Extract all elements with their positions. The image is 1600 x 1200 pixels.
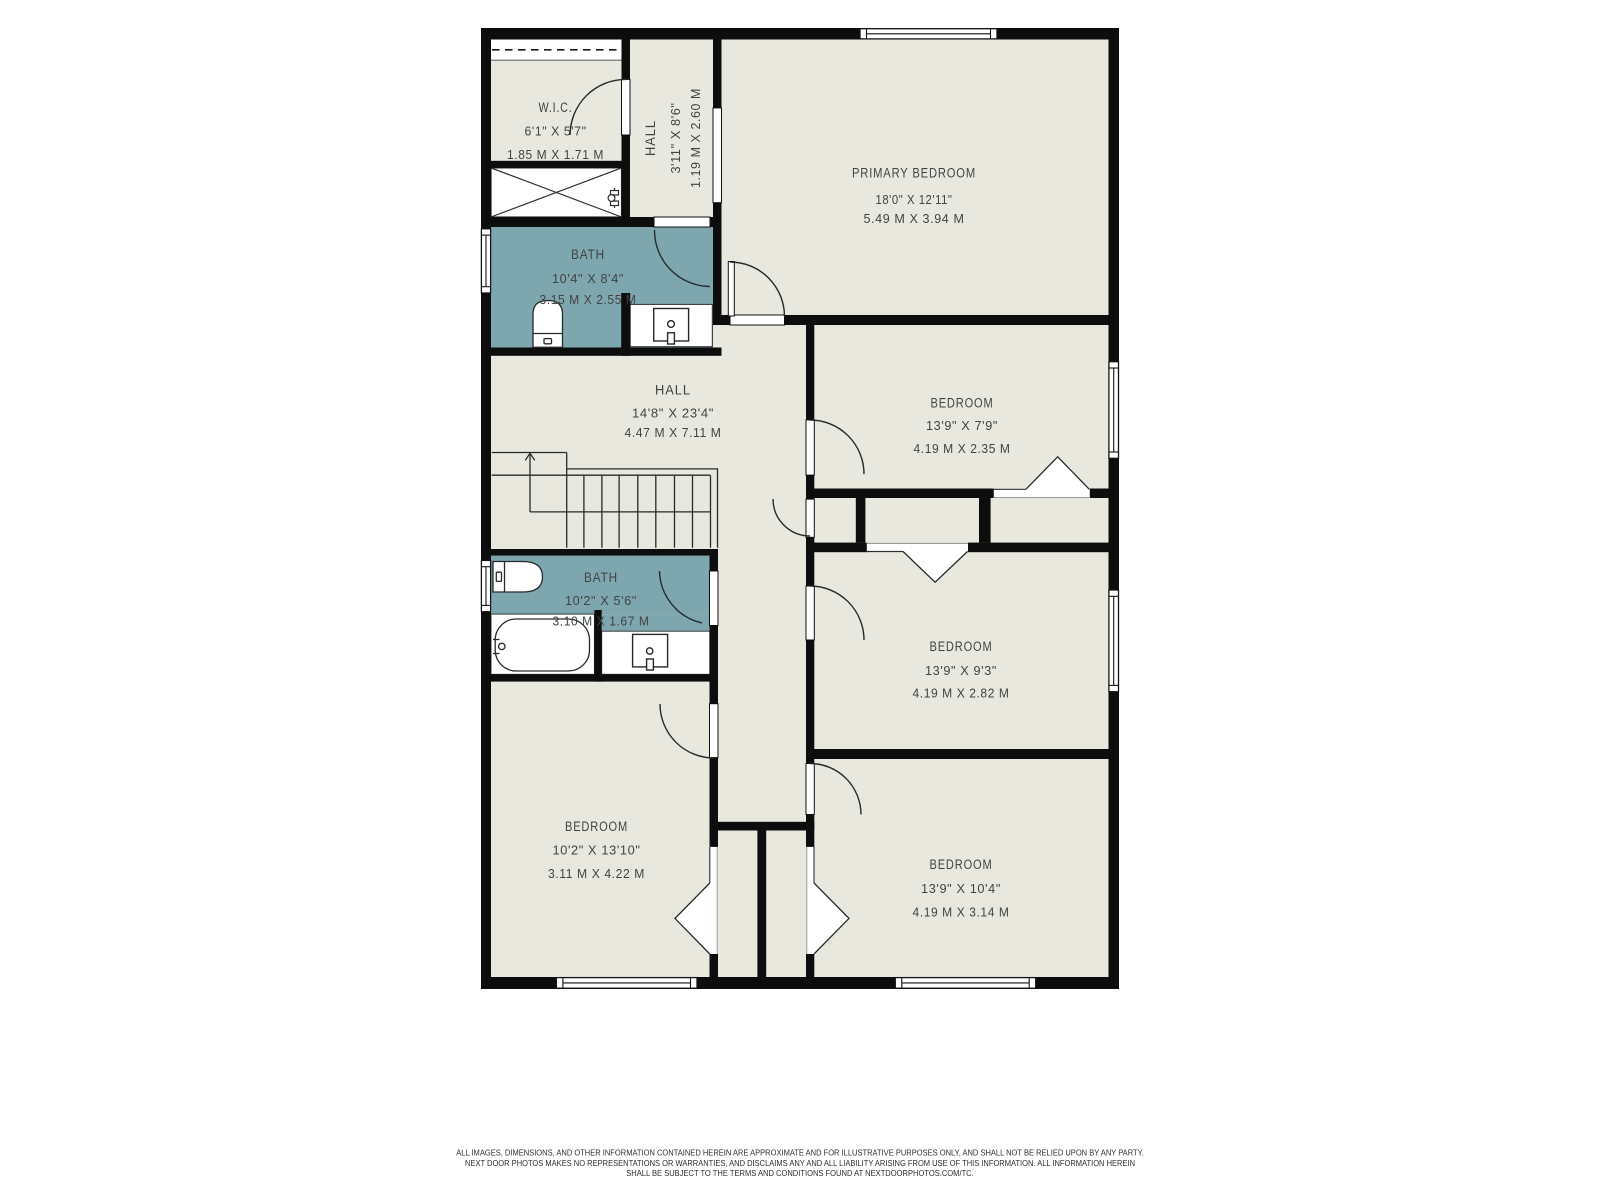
svg-text:10'2" X 5'6": 10'2" X 5'6"	[565, 594, 637, 608]
svg-text:14'8" X 23'4": 14'8" X 23'4"	[632, 407, 714, 421]
svg-text:HALL: HALL	[643, 120, 658, 156]
svg-text:10'2" X 13'10": 10'2" X 13'10"	[553, 844, 641, 858]
svg-text:NEXT DOOR PHOTOS MAKES NO REPR: NEXT DOOR PHOTOS MAKES NO REPRESENTATION…	[465, 1159, 1135, 1168]
svg-text:3.10 M X 1.67 M: 3.10 M X 1.67 M	[553, 615, 650, 629]
svg-text:4.19 M X 3.14 M: 4.19 M X 3.14 M	[913, 906, 1010, 920]
svg-text:BEDROOM: BEDROOM	[565, 819, 628, 834]
svg-text:3.11 M X 4.22 M: 3.11 M X 4.22 M	[548, 867, 645, 881]
svg-text:3'11" X 8'6": 3'11" X 8'6"	[669, 103, 683, 174]
svg-text:5.49 M X 3.94 M: 5.49 M X 3.94 M	[864, 212, 965, 226]
svg-text:4.19 M X 2.82 M: 4.19 M X 2.82 M	[913, 687, 1010, 701]
svg-text:ALL IMAGES, DIMENSIONS, AND OT: ALL IMAGES, DIMENSIONS, AND OTHER INFORM…	[456, 1149, 1144, 1158]
svg-text:13'9" X 10'4": 13'9" X 10'4"	[921, 882, 1001, 896]
svg-text:3.15 M X 2.55 M: 3.15 M X 2.55 M	[540, 293, 637, 307]
svg-text:18'0" X 12'11": 18'0" X 12'11"	[876, 193, 953, 207]
svg-text:1.85 M X 1.71 M: 1.85 M X 1.71 M	[507, 148, 604, 162]
svg-text:BATH: BATH	[584, 570, 618, 585]
svg-text:W.I.C.: W.I.C.	[539, 100, 573, 115]
svg-text:BEDROOM: BEDROOM	[931, 396, 994, 411]
svg-text:SHALL BE SUBJECT TO THE TERMS: SHALL BE SUBJECT TO THE TERMS AND CONDIT…	[626, 1169, 974, 1178]
svg-text:BEDROOM: BEDROOM	[930, 639, 993, 654]
svg-text:10'4" X 8'4": 10'4" X 8'4"	[552, 272, 624, 286]
svg-text:BEDROOM: BEDROOM	[930, 857, 993, 872]
svg-text:6'1" X 5'7": 6'1" X 5'7"	[525, 125, 587, 139]
svg-text:1.19 M X 2.60 M: 1.19 M X 2.60 M	[689, 88, 703, 188]
svg-text:PRIMARY BEDROOM: PRIMARY BEDROOM	[852, 166, 976, 181]
svg-text:4.19 M X 2.35 M: 4.19 M X 2.35 M	[914, 442, 1011, 456]
svg-text:HALL: HALL	[655, 383, 691, 398]
svg-text:4.47 M X 7.11 M: 4.47 M X 7.11 M	[625, 426, 722, 440]
svg-text:13'9" X 7'9": 13'9" X 7'9"	[926, 419, 998, 433]
svg-text:13'9" X 9'3": 13'9" X 9'3"	[925, 664, 997, 678]
svg-text:BATH: BATH	[571, 247, 605, 262]
